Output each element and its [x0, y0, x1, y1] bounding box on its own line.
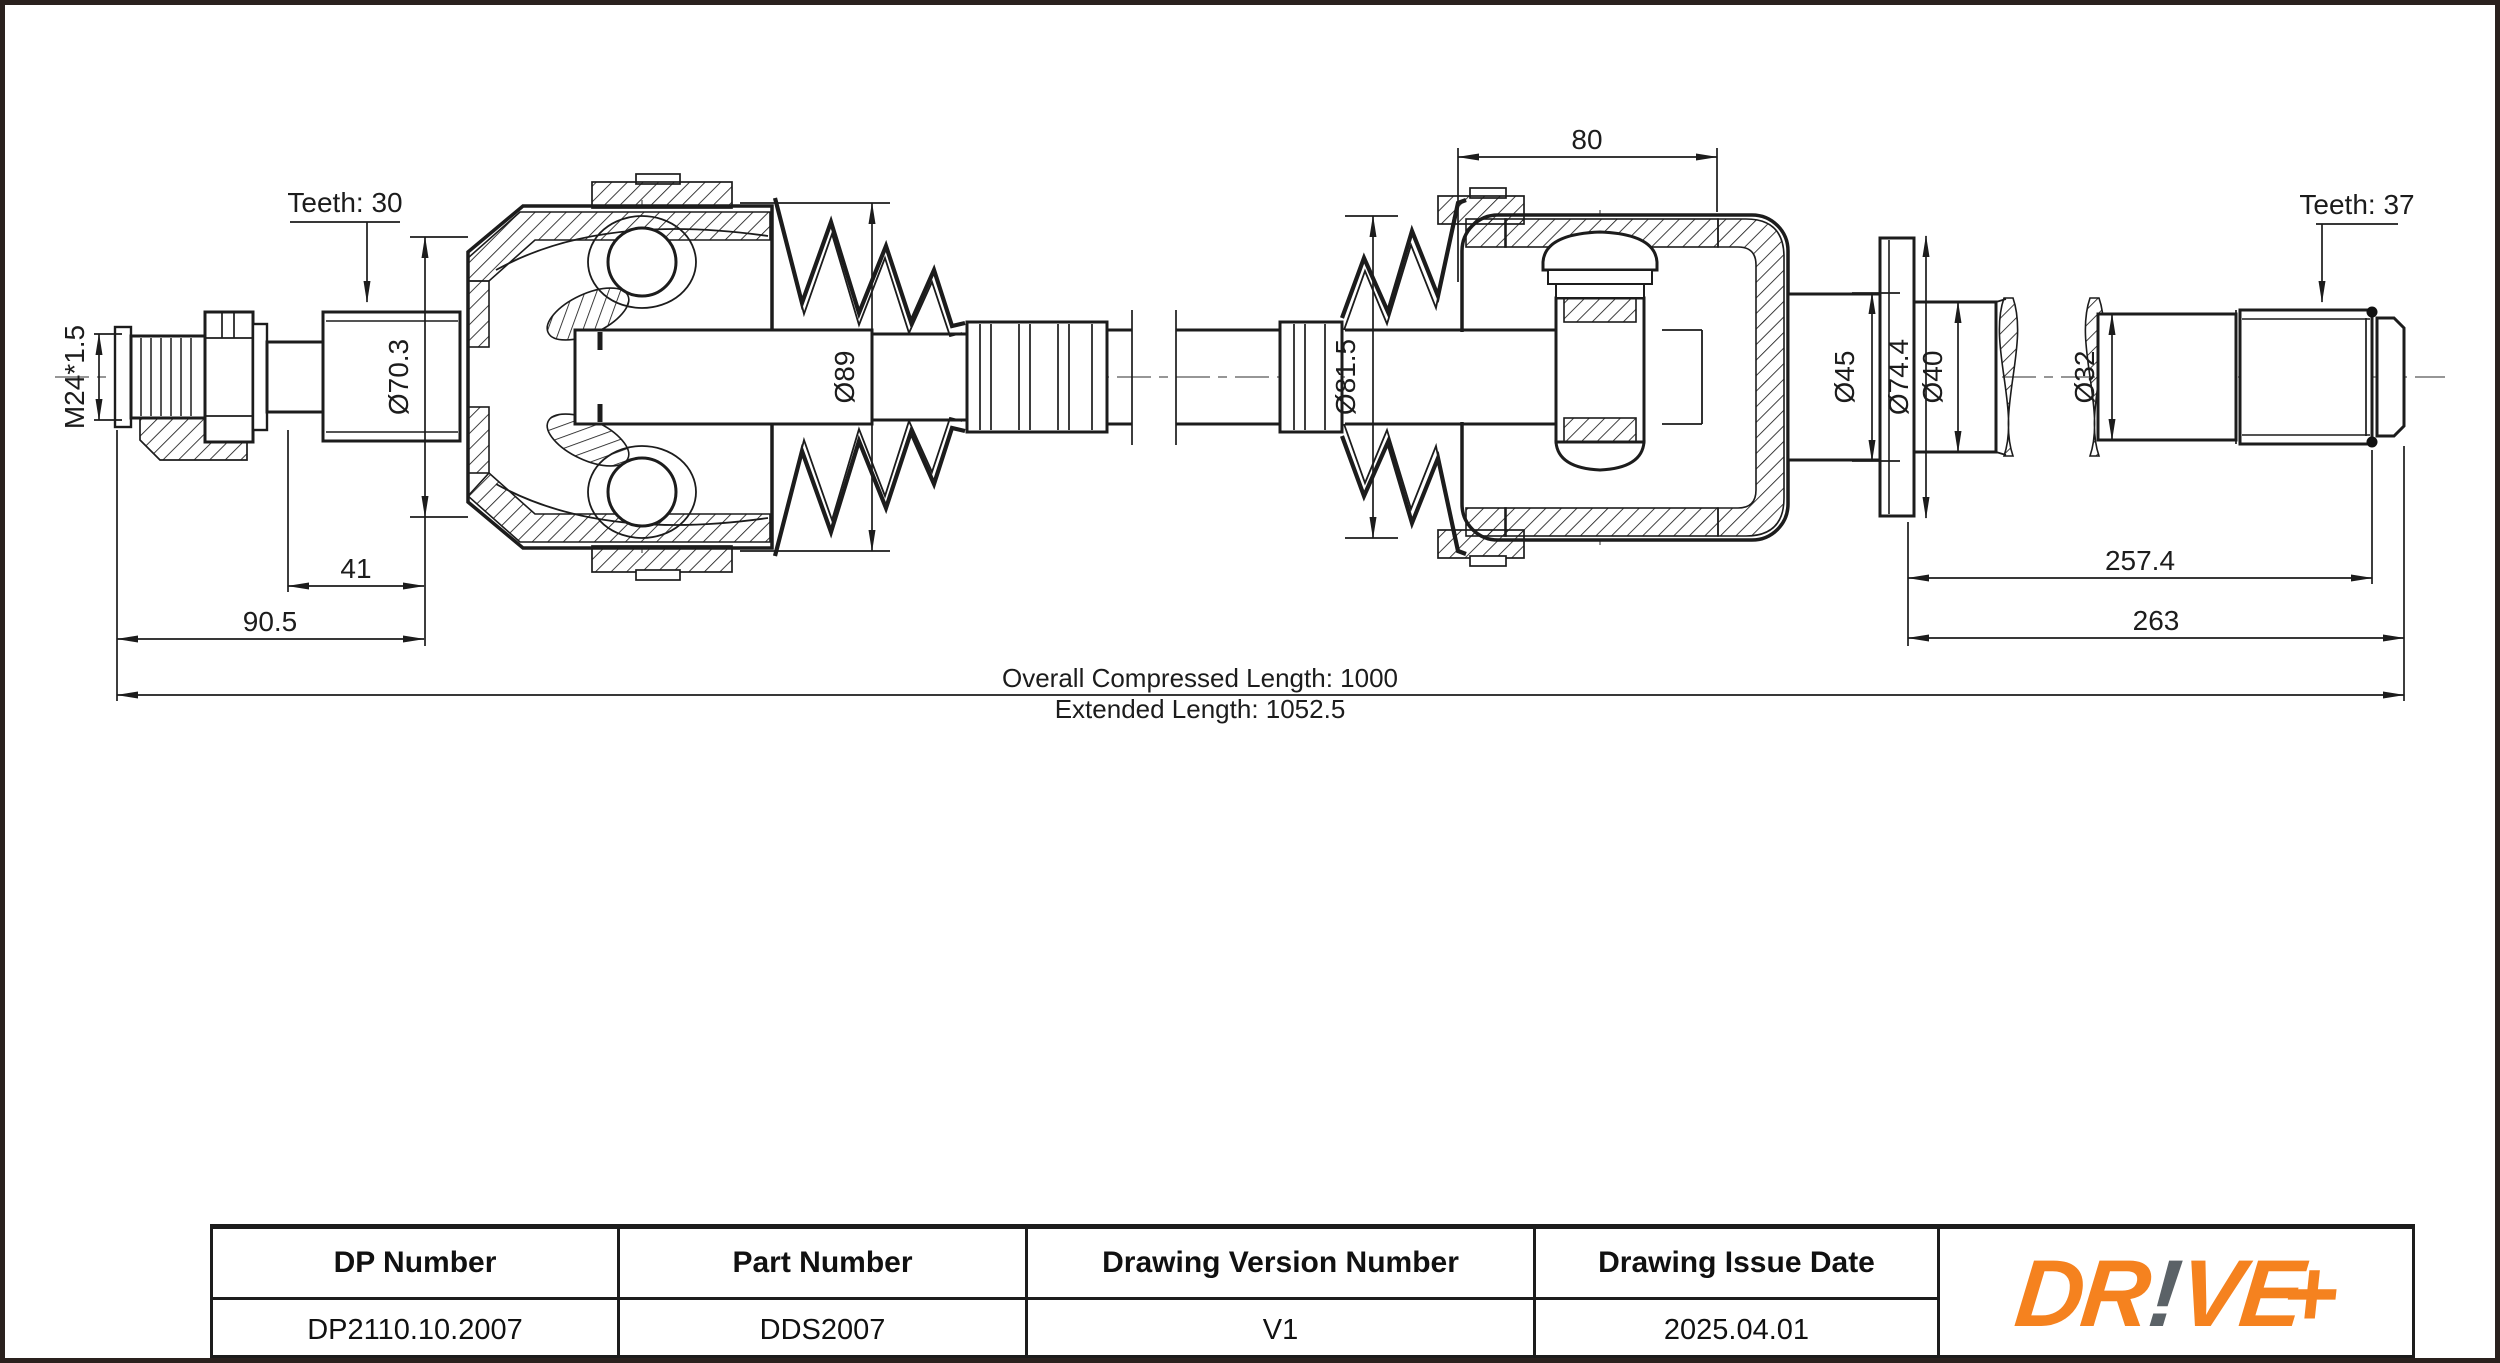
len-263-label: 263 — [2133, 605, 2180, 636]
shaft-end-cap — [2377, 318, 2404, 436]
boot-clamp-ribbed-1 — [967, 322, 1107, 432]
shaft-32 — [2098, 314, 2236, 440]
overall-compressed-label: Overall Compressed Length: 1000 — [1002, 663, 1398, 693]
dia-74-label: Ø74.4 — [1883, 339, 1914, 415]
thread-section — [131, 336, 205, 418]
dia-81-label: Ø81.5 — [1330, 339, 1361, 415]
len-257-label: 257.4 — [2105, 545, 2175, 576]
dia-89-label: Ø89 — [829, 351, 860, 404]
dia-70-label: Ø70.3 — [383, 339, 414, 415]
left-stub-shaft — [115, 312, 323, 460]
logo-dr: DR — [2011, 1241, 2153, 1347]
len-80-label: 80 — [1571, 124, 1602, 155]
bearing-ball — [608, 228, 676, 296]
dia-32-label: Ø32 — [2069, 351, 2100, 404]
table-value-dp-number: DP2110.10.2007 — [213, 1300, 620, 1360]
right-spline-shaft — [2240, 310, 2372, 444]
snap-ring — [2367, 307, 2378, 318]
logo-plus: + — [2278, 1241, 2342, 1347]
logo-cell: DR!VE+ — [1940, 1229, 2412, 1360]
table-value-drawing-version: V1 — [1028, 1300, 1536, 1360]
table-header-drawing-version: Drawing Version Number — [1028, 1229, 1536, 1300]
extended-length-label: Extended Length: 1052.5 — [1055, 694, 1346, 724]
tripod-bearing — [1543, 232, 1657, 470]
outer-cv-housing — [468, 174, 967, 580]
table-header-dp-number: DP Number — [213, 1229, 620, 1300]
table-value-part-number: DDS2007 — [620, 1300, 1028, 1360]
thread-size-label: M24*1.5 — [59, 325, 90, 429]
title-block-table: DP Number Part Number Drawing Version Nu… — [210, 1224, 2415, 1358]
teeth-30-label: Teeth: 30 — [287, 187, 402, 218]
teeth-37-label: Teeth: 37 — [2299, 189, 2414, 220]
joint-inner-shaft — [575, 330, 872, 424]
dia-45-label: Ø45 — [1829, 351, 1860, 404]
bearing-ball — [608, 458, 676, 526]
axle-technical-drawing: Teeth: 30 Teeth: 37 M24*1.5 Ø70.3 Ø89 Ø8… — [0, 0, 2500, 1363]
len-41-label: 41 — [340, 553, 371, 584]
drive-shaft — [967, 310, 1342, 445]
len-90-label: 90.5 — [243, 606, 298, 637]
stub-neck — [267, 342, 323, 412]
snap-ring — [2367, 437, 2378, 448]
table-header-issue-date: Drawing Issue Date — [1536, 1229, 1940, 1300]
drive-plus-logo: DR!VE+ — [2011, 1247, 2340, 1342]
table-header-part-number: Part Number — [620, 1229, 1028, 1300]
hub-nut — [205, 312, 267, 442]
dia-40-label: Ø40 — [1917, 351, 1948, 404]
drawing-sheet: Teeth: 30 Teeth: 37 M24*1.5 Ø70.3 Ø89 Ø8… — [0, 0, 2500, 1363]
table-value-issue-date: 2025.04.01 — [1536, 1300, 1940, 1360]
